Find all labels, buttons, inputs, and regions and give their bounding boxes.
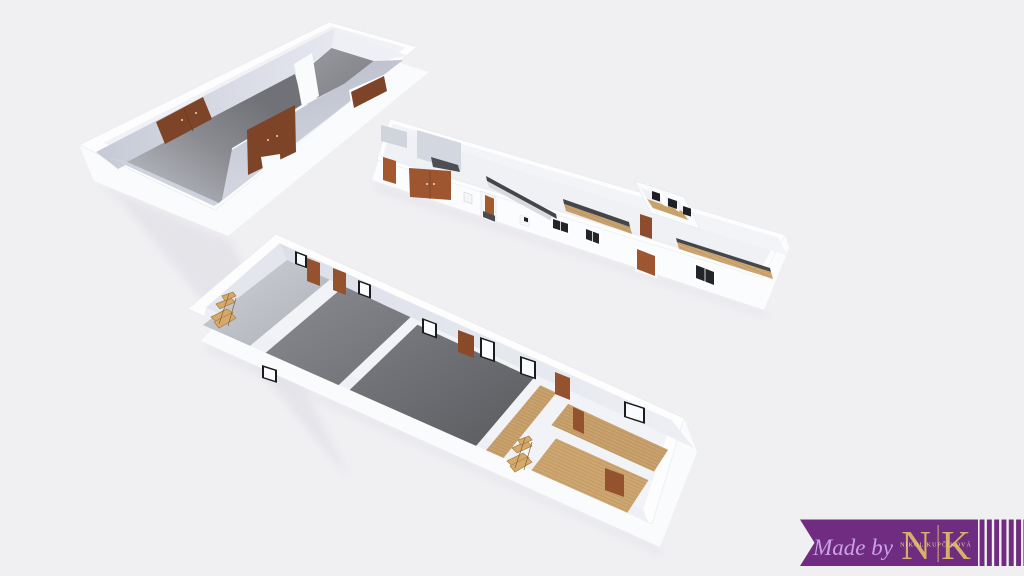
svg-text:NIKOL KUPČÍKOVÁ: NIKOL KUPČÍKOVÁ	[900, 541, 972, 549]
svg-text:Made by: Made by	[812, 535, 894, 560]
